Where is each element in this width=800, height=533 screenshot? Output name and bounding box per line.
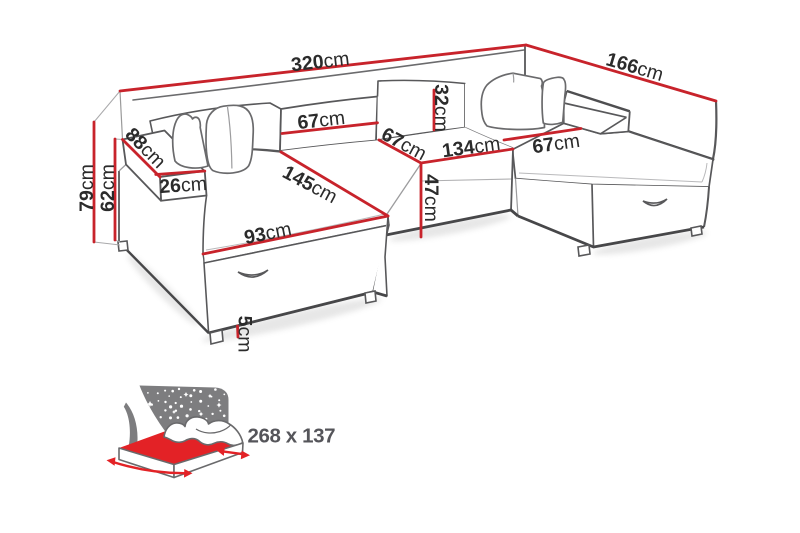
svg-text:26cm: 26cm	[159, 173, 208, 198]
svg-text:320cm: 320cm	[290, 48, 351, 76]
svg-text:62cm: 62cm	[97, 164, 119, 212]
svg-text:47cm: 47cm	[420, 174, 442, 222]
svg-text:166cm: 166cm	[604, 48, 666, 86]
svg-text:32cm: 32cm	[430, 84, 452, 132]
svg-text:5cm: 5cm	[234, 316, 256, 353]
svg-text:79cm: 79cm	[76, 164, 98, 212]
svg-text:268 x 137: 268 x 137	[248, 425, 336, 448]
